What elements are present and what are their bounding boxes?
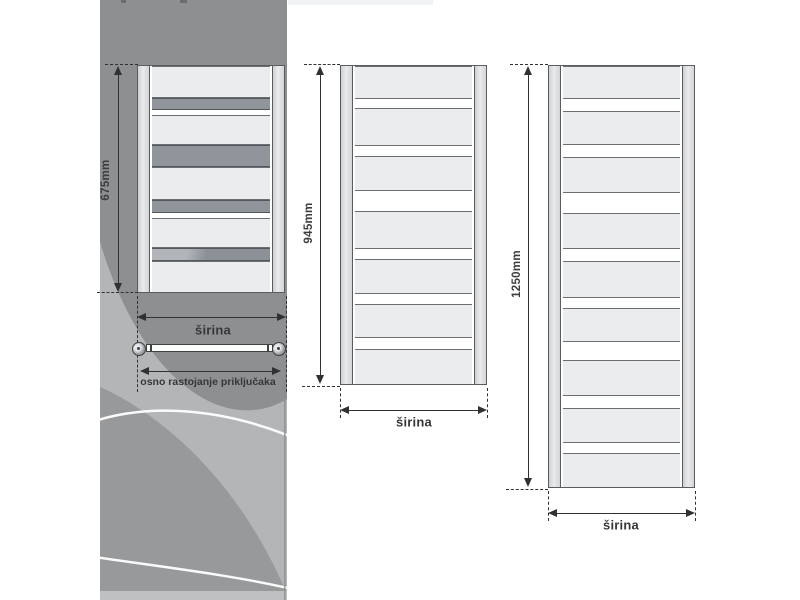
arrowhead-left-icon: [548, 509, 557, 517]
radiator-panel: [563, 157, 680, 193]
panel-gap: [563, 249, 680, 261]
width-dimension-label: širina: [603, 518, 639, 533]
arrowhead-up-icon: [524, 66, 532, 75]
radiator-panel: [563, 261, 680, 298]
left-tube: [548, 66, 561, 487]
radiator-panel: [563, 308, 680, 342]
arrowhead-down-icon: [524, 478, 532, 487]
height-dimension-arrow: [524, 66, 533, 487]
right-tube: [682, 66, 695, 487]
radiator-panel: [563, 66, 680, 99]
panel-gap: [563, 193, 680, 213]
dimension-line: [555, 513, 688, 514]
radiator-panel: [563, 213, 680, 249]
radiator-panel: [563, 408, 680, 443]
height-dimension-label: 1250mm: [511, 250, 523, 298]
panel-gap: [563, 443, 680, 453]
arrowhead-right-icon: [686, 509, 695, 517]
extension-line-bottom: [506, 489, 548, 490]
radiator-group-1250: 1250mm širina: [0, 0, 800, 600]
panel-gap: [563, 342, 680, 360]
panel-gap: [563, 298, 680, 308]
diagram-stage: 675mm širina osno rastojanje priključaka…: [0, 0, 800, 600]
panel-rows: [563, 66, 680, 487]
panel-gap: [563, 99, 680, 111]
panel-gap: [563, 145, 680, 157]
extension-line-top: [510, 64, 548, 65]
radiator-panel: [563, 453, 680, 487]
dimension-line: [528, 73, 529, 480]
radiator-body: [548, 65, 695, 488]
radiator-panel: [563, 360, 680, 396]
width-extension-right: [695, 491, 696, 521]
radiator-panel: [563, 111, 680, 145]
width-dimension-arrow: [548, 509, 695, 518]
panel-gap: [563, 396, 680, 408]
